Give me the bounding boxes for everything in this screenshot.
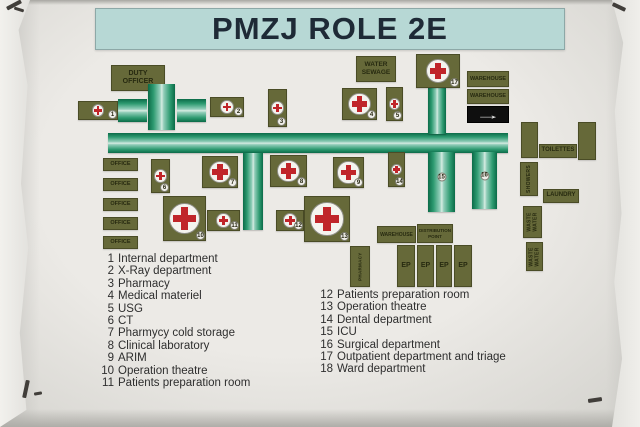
ep-box: EP [417,245,434,287]
red-cross-icon [310,202,343,235]
tent-number-badge: 17 [450,78,459,87]
red-cross-icon [426,59,450,83]
tent-number-badge: 16 [480,171,489,180]
ep-box: EP [454,245,472,287]
tent-number-badge: 13 [340,232,349,241]
legend-item: 10Operation theatre [97,365,250,377]
legend-item: 3Pharmacy [97,278,250,290]
waste-water-label: WASTE WATER [523,206,542,238]
office-label-text: OFFICE [110,239,130,246]
legend-item-label: Ward department [337,363,425,375]
waste-water-label: WASTE WATER [526,242,543,271]
legend-item-label: Dental department [337,314,432,326]
office-label-text: OFFICE [110,201,130,208]
tent-14-dental: 14 [388,152,405,187]
warehouse-label-text: WAREHOUSE [470,93,506,100]
legend-item: 15ICU [316,326,506,338]
legend-item-label: ICU [337,326,357,338]
ambulance-entrance-arrow: → [467,106,509,123]
office-label: OFFICE [103,158,138,171]
legend-item: 9ARIM [97,352,250,364]
tent-1-internal: 1 [78,101,118,120]
warehouse-label: WAREHOUSE [467,71,509,87]
tent-number-badge: 5 [393,111,402,120]
legend-item-number: 3 [97,278,114,290]
legend-item-label: Operation theatre [337,301,427,313]
legend-item: 18Ward department [316,363,506,375]
waste-water-label-text: WASTE WATER [527,212,539,231]
warehouse-label: WAREHOUSE [377,226,416,243]
tent-7-cold-storage: 7 [202,156,238,188]
tent-number-badge: 7 [228,178,237,187]
tent-5-usg: 5 [386,87,403,121]
legend-item: 1Internal department [97,253,250,265]
tent-4-medical-materiel: 4 [342,88,377,120]
tent-number-badge: 12 [294,221,303,230]
distribution-point-label: DISTRIBUTION POINT [417,224,453,243]
legend-left-column: 1Internal department2X-Ray department3Ph… [97,253,250,389]
legend-item: 7Pharmycy cold storage [97,327,250,339]
legend-item-number: 6 [97,315,114,327]
tent-11-patients-prep: 11 [207,210,240,231]
legend-item-label: Patients preparation room [337,289,469,301]
tent-number-badge: 14 [395,177,404,186]
legend-item: 11Patients preparation room [97,377,250,389]
legend-item-number: 13 [316,301,333,313]
legend-item-label: USG [118,303,143,315]
legend-item: 4Medical materiel [97,290,250,302]
tent-15-icu: 15 [428,152,455,212]
entrance-arrow-icon: → [475,109,501,121]
legend-item-label: Clinical laboratory [118,340,209,352]
office-label: OFFICE [103,217,138,230]
pharmacy-store-label-text: PHARMACY [357,252,362,280]
toilet-block [521,122,538,158]
red-cross-icon [169,203,201,235]
corridor-segment [118,99,147,122]
office-label: OFFICE [103,236,138,249]
legend-item: 5USG [97,303,250,315]
tent-8-laboratory: 8 [270,155,307,187]
tent-2-xray: 2 [210,97,244,117]
legend-item-number: 15 [316,326,333,338]
ep-box-text: EP [439,262,448,270]
red-cross-icon [391,164,403,176]
tent-number-badge: 1 [108,110,117,119]
ep-box-text: EP [421,262,430,270]
tent-number-badge: 10 [196,231,205,240]
tent-17-outpatient-triage: 17 [416,54,460,88]
legend-item-number: 18 [316,363,333,375]
legend-item-number: 16 [316,339,333,351]
warehouse-label-text: WAREHOUSE [470,76,506,83]
tent-number-badge: 9 [354,178,363,187]
tent-3-pharmacy: 3 [268,89,287,127]
red-cross-icon [271,101,284,114]
legend-item: 16Surgical department [316,339,506,351]
office-label-text: OFFICE [110,161,130,168]
legend-item: 17Outpatient department and triage [316,351,506,363]
tent-6-ct: 6 [151,159,170,193]
legend-item: 13Operation theatre [316,301,506,313]
ep-box: EP [436,245,452,287]
legend-item-label: X-Ray department [118,265,211,277]
main-corridor [108,133,508,153]
tent-number-badge: 8 [297,177,306,186]
office-label-text: OFFICE [110,220,130,227]
tent-number-badge: 4 [367,110,376,119]
red-cross-icon [154,169,167,182]
tent-number-badge: 11 [230,221,239,230]
warehouse-label: WAREHOUSE [467,89,509,104]
office-label: OFFICE [103,178,138,191]
red-cross-icon [216,213,230,227]
tent-9-arim: 9 [333,157,364,188]
office-label: OFFICE [103,198,138,211]
legend-item-number: 14 [316,314,333,326]
legend-item-number: 12 [316,289,333,301]
tent-13-operation-theatre: 13 [304,196,350,242]
water-sewage-label: WATER SEWAGE [356,56,396,82]
tent-16-surgical: 16 [472,152,497,209]
water-sewage-label-text: WATER SEWAGE [362,61,391,77]
ep-box: EP [397,245,415,287]
legend-item: 14Dental department [316,314,506,326]
legend-item-label: Outpatient department and triage [337,351,506,363]
legend-right-column: 12Patients preparation room13Operation t… [316,289,506,376]
legend-item-label: ARIM [118,352,147,364]
distribution-point-label-text: DISTRIBUTION POINT [419,228,451,239]
triage-corridor-stem [428,88,446,134]
central-corridor [243,153,263,230]
legend-item-label: Operation theatre [118,365,208,377]
legend-item-number: 5 [97,303,114,315]
legend-item-number: 11 [97,377,114,389]
legend-item: 8Clinical laboratory [97,340,250,352]
toilet-block [578,122,596,160]
pharmacy-store-label: PHARMACY [350,246,370,287]
legend-item-label: Medical materiel [118,290,202,302]
ep-box-text: EP [401,262,410,270]
warehouse-label-text: WAREHOUSE [380,232,413,238]
legend-item-number: 10 [97,365,114,377]
tent-number-badge: 3 [277,117,286,126]
corridor-segment [177,99,206,122]
legend-item-number: 1 [97,253,114,265]
legend-item-label: Internal department [118,253,218,265]
showers-label-text: SHOWERS [526,165,532,193]
legend-item: 12Patients preparation room [316,289,506,301]
legend-item-number: 4 [97,290,114,302]
tent-10-operation-theatre: 10 [163,196,206,241]
red-cross-icon [220,100,234,114]
waste-water-label-text: WASTE WATER [529,247,541,266]
showers-label: SHOWERS [520,162,538,196]
legend-item-label: Pharmacy [118,278,170,290]
legend-item-label: Surgical department [337,339,440,351]
legend-item-label: CT [118,315,133,327]
toilettes-label: TOILETTES [539,144,577,158]
toilettes-label-text: TOILETTES [542,147,575,154]
legend-item: 6CT [97,315,250,327]
tent-number-badge: 15 [437,173,446,182]
laundry-label-text: LAUNDRY [546,192,575,199]
red-cross-icon [92,104,105,117]
legend-item: 2X-Ray department [97,265,250,277]
tent-12-patients-prep: 12 [276,210,304,231]
red-cross-icon [389,98,401,110]
laundry-label: LAUNDRY [543,189,579,203]
legend-item-number: 8 [97,340,114,352]
legend-item-label: Patients preparation room [118,377,250,389]
tent-number-badge: 6 [160,183,169,192]
ep-box-text: EP [458,262,467,270]
corridor-junction [148,84,175,130]
legend-item-number: 7 [97,327,114,339]
legend-item-number: 9 [97,352,114,364]
legend-item-number: 2 [97,265,114,277]
tent-number-badge: 2 [234,107,243,116]
legend-item-label: Pharmycy cold storage [118,327,235,339]
legend-item-number: 17 [316,351,333,363]
office-label-text: OFFICE [110,181,130,188]
